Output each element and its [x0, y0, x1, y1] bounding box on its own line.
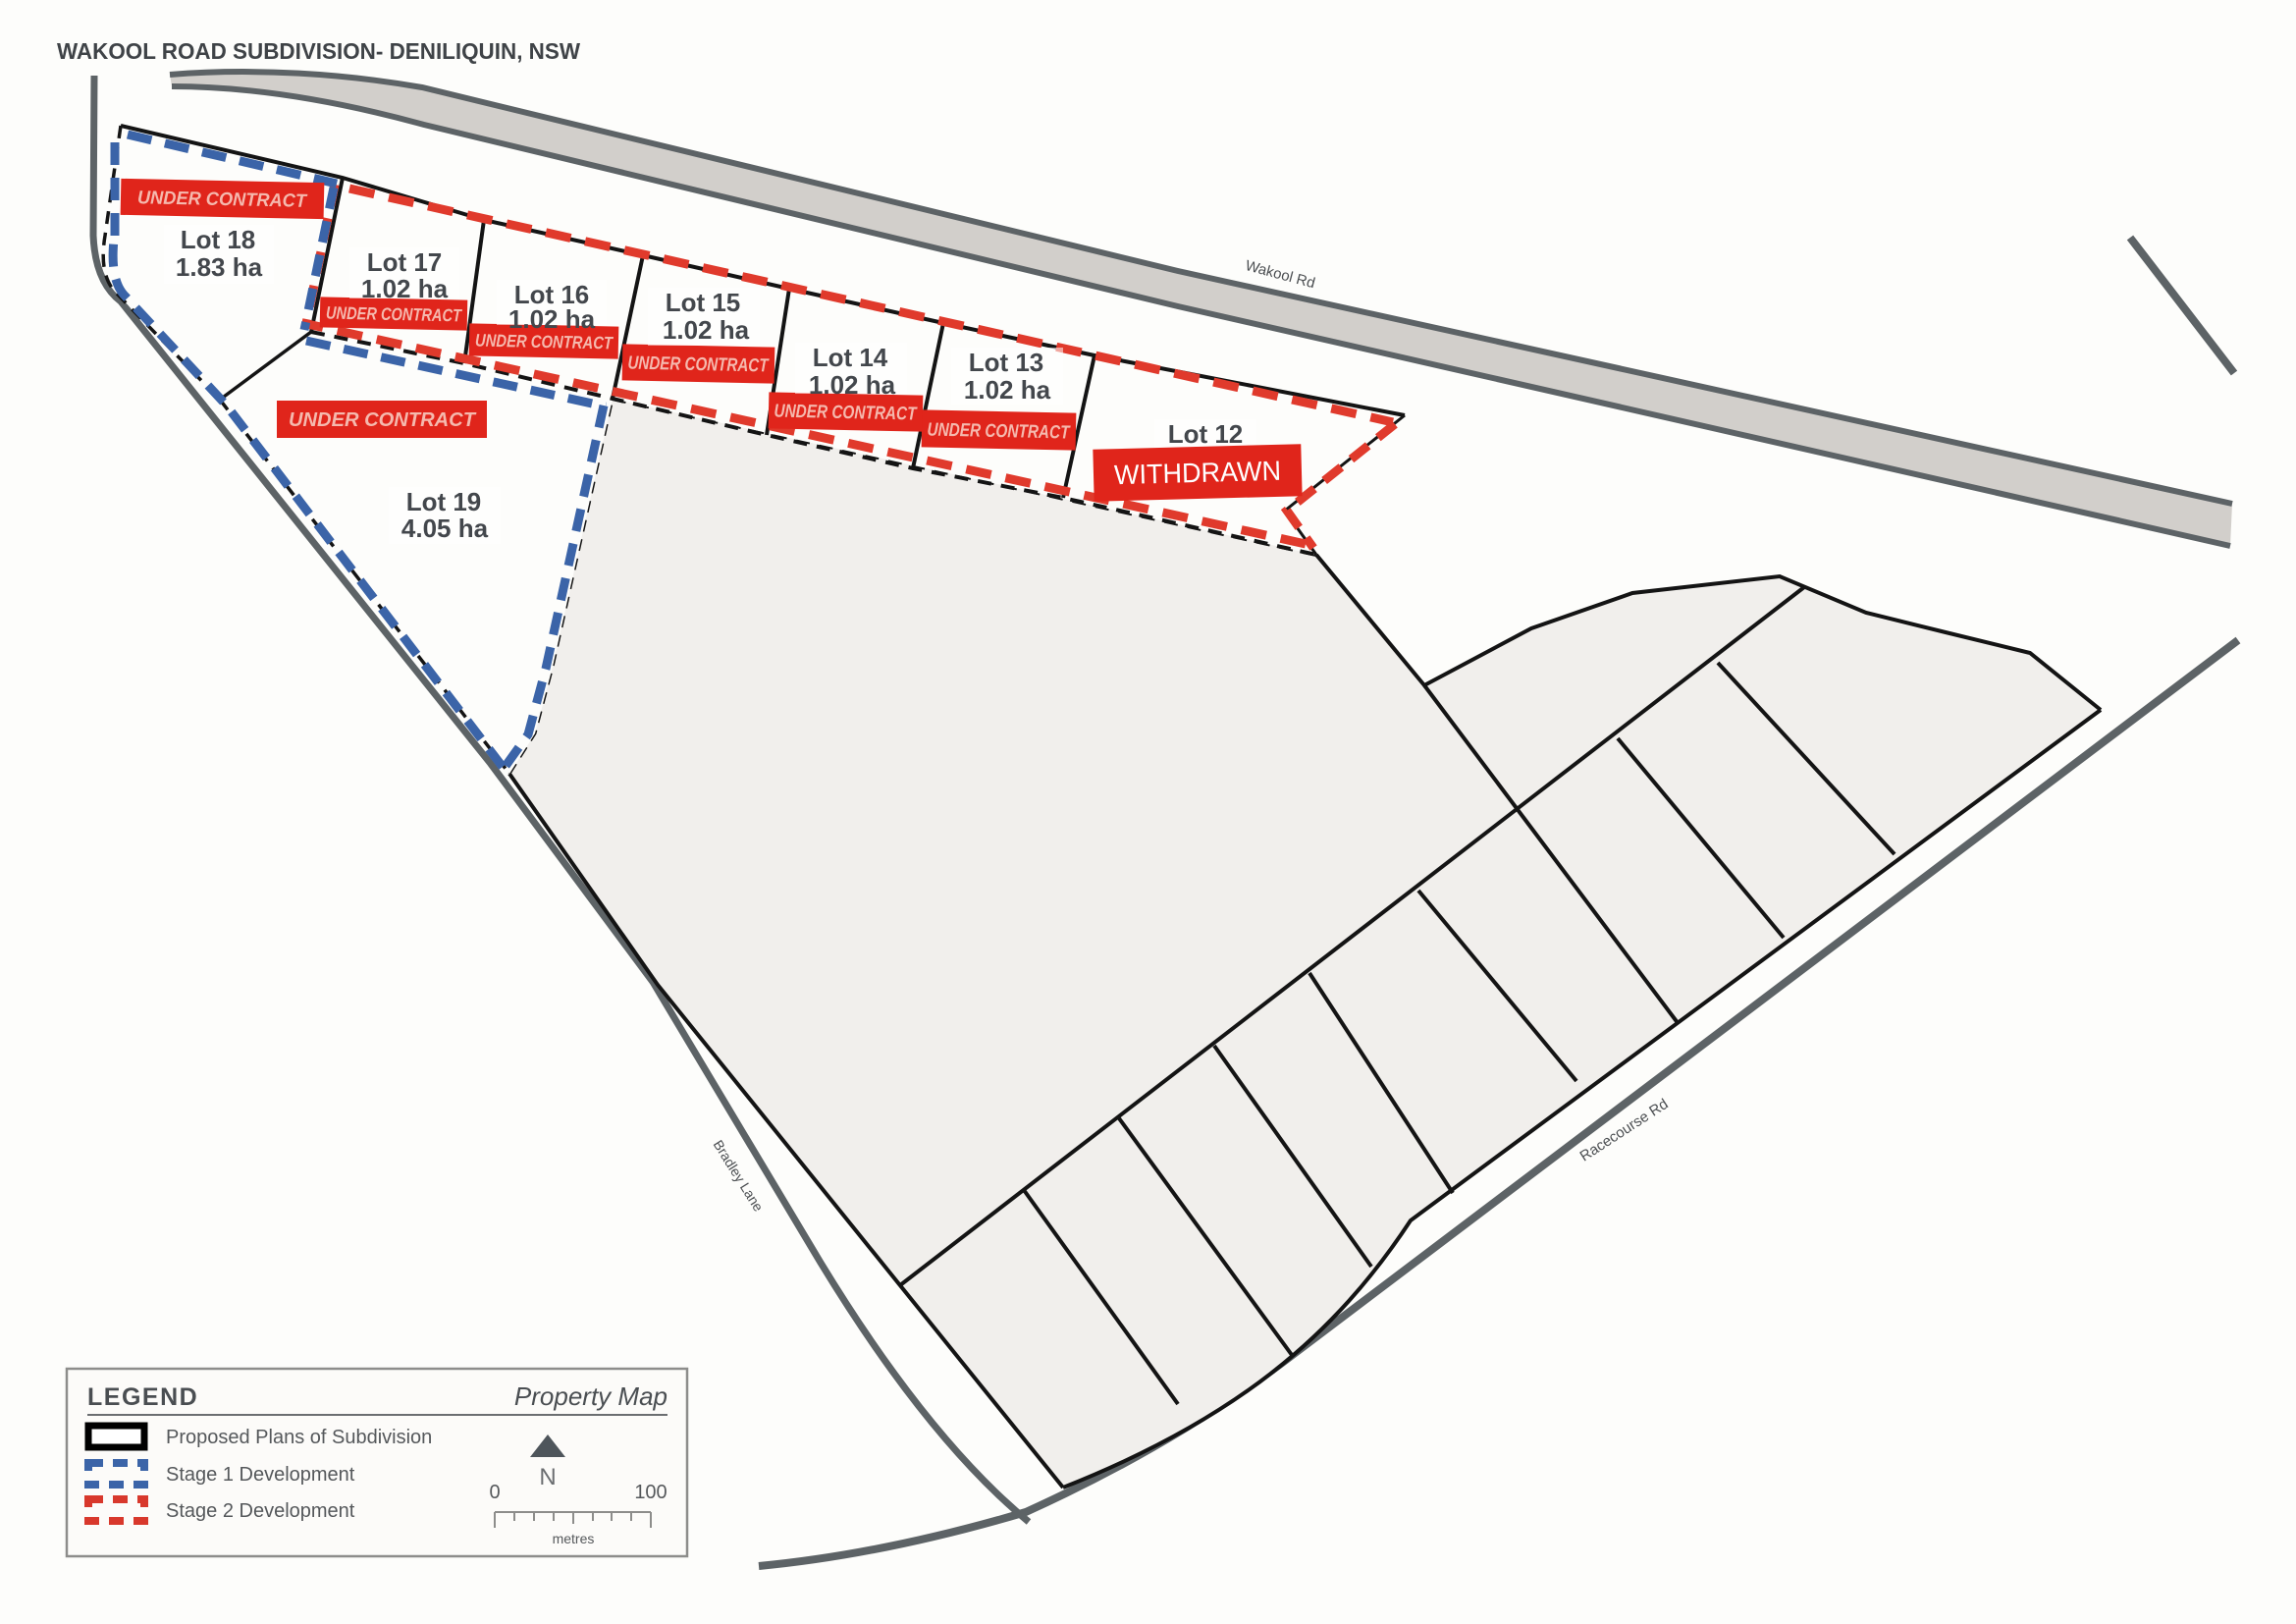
svg-text:LEGEND: LEGEND — [87, 1383, 198, 1411]
svg-text:Stage 1 Development: Stage 1 Development — [166, 1464, 355, 1486]
svg-text:Lot 12: Lot 12 — [1168, 419, 1244, 449]
svg-text:Proposed Plans of Subdivision: Proposed Plans of Subdivision — [166, 1427, 432, 1448]
svg-text:4.05 ha: 4.05 ha — [401, 514, 489, 543]
svg-text:UNDER CONTRACT: UNDER CONTRACT — [289, 409, 477, 431]
svg-text:1.02 ha: 1.02 ha — [663, 315, 750, 345]
svg-text:1.02 ha: 1.02 ha — [964, 375, 1051, 405]
svg-text:Stage 2 Development: Stage 2 Development — [166, 1500, 355, 1522]
svg-text:1.02 ha: 1.02 ha — [361, 274, 449, 303]
svg-text:WITHDRAWN: WITHDRAWN — [1114, 456, 1282, 490]
svg-text:100: 100 — [634, 1482, 667, 1503]
svg-text:Lot 19: Lot 19 — [406, 487, 482, 516]
svg-text:Lot 14: Lot 14 — [813, 343, 888, 372]
svg-text:N: N — [539, 1464, 556, 1490]
svg-text:1.02 ha: 1.02 ha — [809, 370, 896, 400]
svg-text:Lot 15: Lot 15 — [666, 288, 741, 317]
svg-text:Lot 17: Lot 17 — [367, 247, 443, 277]
svg-text:UNDER CONTRACT: UNDER CONTRACT — [627, 353, 770, 377]
svg-text:UNDER CONTRACT: UNDER CONTRACT — [137, 188, 308, 212]
svg-text:UNDER CONTRACT: UNDER CONTRACT — [326, 303, 463, 326]
svg-text:Lot 13: Lot 13 — [969, 348, 1044, 377]
svg-text:metres: metres — [553, 1531, 595, 1546]
svg-text:0: 0 — [489, 1482, 500, 1503]
svg-text:1.02 ha: 1.02 ha — [508, 304, 596, 334]
svg-text:Lot 18: Lot 18 — [181, 225, 256, 254]
svg-text:UNDER CONTRACT: UNDER CONTRACT — [927, 419, 1071, 443]
svg-text:UNDER CONTRACT: UNDER CONTRACT — [774, 401, 918, 424]
svg-text:Property Map: Property Map — [514, 1381, 667, 1411]
svg-text:1.83 ha: 1.83 ha — [176, 252, 263, 282]
svg-text:WAKOOL ROAD SUBDIVISION- DENIL: WAKOOL ROAD SUBDIVISION- DENILIQUIN, NSW — [57, 38, 580, 64]
